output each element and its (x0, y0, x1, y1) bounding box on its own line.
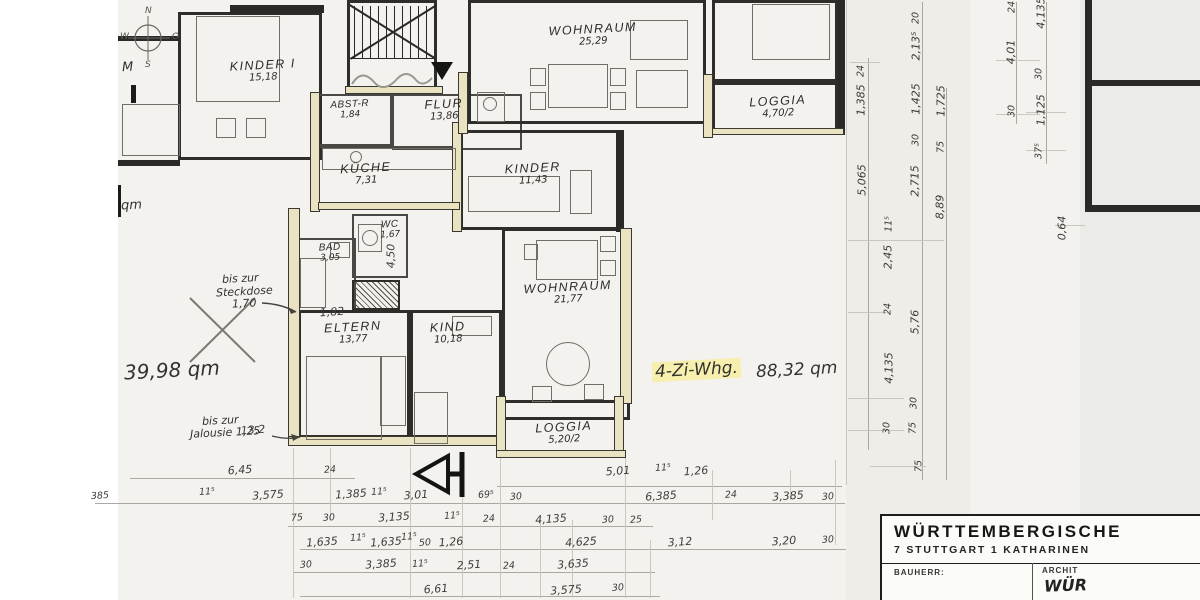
dimension-label: 1,26 (438, 535, 463, 550)
guide-line (1026, 150, 1066, 151)
dimension-label: 30 (300, 559, 313, 571)
dimension-label: 30 (822, 534, 835, 546)
room-area: 3,05 (319, 252, 342, 263)
dimension-label: 20 (911, 12, 922, 24)
dimension-label: 30 (612, 582, 625, 594)
dimension-label: 25 (630, 514, 643, 526)
furniture (600, 260, 616, 276)
furniture (306, 356, 382, 440)
stair-tread (370, 6, 371, 58)
room-name: LOGGIA (749, 93, 807, 110)
room-label-loggia-top: LOGGIA 4,70/2 (749, 93, 807, 121)
dimension-label: 75 (291, 512, 304, 524)
dimension-label: 1,635 (370, 534, 402, 549)
dimension-label: 2,715 (909, 165, 922, 197)
compass-w: W (120, 32, 129, 42)
dimension-label: 30 (882, 422, 893, 434)
furniture (630, 20, 688, 60)
guide-line (848, 240, 944, 241)
dimension-label: 69⁵ (478, 489, 495, 501)
dimension-label: 3,135 (378, 509, 410, 524)
room-area: 13,86 (425, 110, 464, 123)
annotation-apartment-area: 88,32 qm (756, 358, 838, 382)
dimension-label: 6,385 (645, 488, 677, 503)
scan-margin-left (0, 0, 118, 600)
tinted-wall (496, 396, 506, 458)
dimension-label: 24 (883, 303, 894, 315)
dimension-label: 1,125 (1035, 94, 1048, 126)
dimension-label: 3,385 (365, 556, 397, 571)
guide-line (330, 448, 331, 520)
tinted-wall (452, 122, 462, 232)
stair-landing-line (350, 58, 434, 59)
title-block-address: 7 STUTTGART 1 KATHARINEN (894, 544, 1200, 556)
dimension-label: 3,575 (550, 582, 582, 597)
furniture (524, 244, 538, 260)
title-block-architekt-label: ARCHIT (1042, 566, 1078, 575)
dimension-label: 2,51 (456, 558, 481, 573)
furniture (636, 70, 688, 108)
dimension-label: 75 (914, 460, 925, 472)
wall-segment (1085, 205, 1200, 212)
chain-line (300, 596, 660, 597)
room-label-kueche: KÜCHE 7,31 (340, 160, 393, 188)
title-block-cell-divider (1032, 563, 1033, 600)
stair-tread (378, 6, 379, 58)
furniture (548, 64, 608, 108)
tinted-wall (310, 92, 320, 212)
dimension-label: 4,135 (883, 352, 896, 384)
furniture-round (483, 97, 497, 111)
highlight: 4-Zi-Whg. (652, 358, 742, 383)
dimension-label: 75 (936, 141, 947, 153)
dimension-label: 4,135 (535, 511, 567, 526)
dimension-label: 1,82 (319, 305, 344, 320)
room-label-wohnraum-top: WOHNRAUM 25,29 (548, 20, 638, 50)
guide-line (850, 62, 880, 63)
annotation-jalousie-2: Jalousie 1,25 (190, 424, 261, 441)
compass-o: O (172, 32, 179, 42)
annotation-steckdose-3: 1,70 (232, 296, 257, 310)
furniture (300, 258, 326, 308)
room-name: KÜCHE (340, 160, 392, 177)
dimension-label: 11⁵ (412, 558, 429, 570)
room-label-kinder2: KINDER 11,43 (504, 160, 561, 188)
dimension-label: 4,50 (385, 244, 398, 269)
dimension-label: 4,625 (565, 534, 597, 549)
guide-line (712, 470, 713, 520)
floor-plan-scan: 6,45245,0111⁵1,2638511⁵3,5751,38511⁵3,01… (0, 0, 1200, 600)
dimension-label: 24 (1007, 1, 1018, 13)
dimension-label: 11⁵ (401, 531, 418, 543)
furniture (610, 92, 626, 110)
dimension-label: 30 (909, 397, 920, 409)
dimension-label: 3,635 (557, 556, 589, 571)
room-label-kind: KIND 10,18 (429, 319, 466, 346)
scan-shade-right (1080, 0, 1200, 600)
dimension-label: 50 (419, 537, 432, 549)
room-name: KINDER (504, 160, 561, 177)
guide-line (410, 448, 411, 598)
room-label-wohnraum-mid: WOHNRAUM 21,77 (523, 278, 613, 308)
annotation-apartment-type: 4-Zi-Whg. (652, 358, 742, 383)
wall-segment (1090, 80, 1200, 86)
chain-line (288, 526, 653, 527)
dimension-label: 11⁵ (371, 486, 388, 498)
dimension-label: 5,76 (909, 310, 922, 335)
room-area: 1,67 (380, 229, 401, 240)
title-block-divider (882, 563, 1200, 564)
dimension-label: 30 (822, 491, 835, 503)
guide-line (848, 430, 904, 431)
furniture (216, 118, 236, 138)
stair-tread (402, 6, 403, 58)
guide-line (625, 458, 626, 598)
room-label-flur: FLUR 13,86 (424, 96, 464, 123)
dimension-label: 24 (725, 489, 738, 501)
dimension-label: 3,385 (772, 488, 804, 503)
furniture (122, 104, 180, 156)
dimension-label: 1,385 (855, 84, 868, 116)
furniture (246, 118, 266, 138)
furniture (600, 236, 616, 252)
furniture-round (362, 230, 378, 246)
dimension-label: 1,385 (335, 486, 367, 501)
furniture (536, 240, 598, 280)
dimension-label: 3,575 (252, 487, 284, 502)
dimension-label: 24 (483, 513, 496, 525)
furniture (584, 384, 604, 400)
dimension-label: 1,26 (683, 464, 708, 479)
room-label-abstr: ABST-R 1,84 (330, 98, 370, 121)
compass-s: S (145, 60, 151, 70)
room-label-kinder1: KINDER I 15,18 (229, 56, 296, 84)
guide-line (996, 114, 1040, 115)
furniture (610, 68, 626, 86)
dimension-label: 30 (1007, 105, 1018, 117)
shaft-hatched (352, 280, 400, 310)
tinted-wall (712, 128, 844, 135)
wall-segment (616, 130, 624, 232)
room-area: 1,84 (331, 109, 370, 121)
room-label-loggia-bottom: LOGGIA 5,20/2 (535, 419, 593, 447)
guide-line (540, 520, 541, 598)
furniture (380, 356, 406, 426)
room-label-eltern: ELTERN 13,77 (324, 319, 383, 347)
dimension-label: 30 (323, 512, 336, 524)
dimension-label: 6,45 (227, 463, 252, 478)
chain-line-vertical (922, 2, 923, 480)
title-block-bauherr-label: BAUHERR: (894, 568, 945, 577)
guide-line (650, 540, 651, 598)
annotation-area-left: 39,98 qm (123, 356, 220, 385)
chain-line (95, 503, 845, 504)
stair-tread (426, 6, 427, 58)
dimension-label: 2,13⁵ (910, 32, 923, 61)
tinted-wall (318, 202, 460, 210)
guide-line (500, 458, 501, 598)
dimension-label: 1,425 (910, 83, 923, 115)
dimension-label: 5,065 (856, 164, 869, 196)
tinted-wall (496, 450, 626, 458)
room-label-bad: BAD 3,05 (318, 241, 341, 263)
furniture (414, 392, 448, 444)
chain-line (293, 572, 655, 573)
dimension-label: 11⁵ (655, 462, 672, 474)
dimension-label: 30 (1034, 68, 1045, 80)
furniture-round (546, 342, 590, 386)
dimension-label: 24 (856, 65, 867, 77)
tinted-wall (345, 86, 443, 94)
dimension-label: 1,725 (935, 85, 948, 117)
stair-tread (410, 6, 411, 58)
wall-segment (118, 160, 180, 166)
annotation-qm-cut: qm (121, 197, 143, 213)
title-block-architekt-value: WÜR (1044, 575, 1088, 595)
room-name: ELTERN (324, 319, 382, 336)
furniture (530, 92, 546, 110)
dimension-label: 75 (908, 422, 919, 434)
dimension-label: 4,01 (1005, 40, 1018, 65)
guide-line (996, 60, 1040, 61)
furniture (530, 68, 546, 86)
dimension-label: 30 (911, 134, 922, 146)
guide-line (835, 460, 836, 545)
dimension-label: 30 (510, 491, 523, 503)
chain-line-vertical (868, 58, 869, 450)
furniture (532, 386, 552, 402)
stair-tread (386, 6, 387, 58)
dimension-label: 3,12 (667, 535, 692, 550)
room-label-wc: WC 1,67 (379, 218, 400, 240)
compass-n: N (145, 6, 152, 16)
wall-segment (1085, 0, 1092, 212)
dimension-label: 4,135 (1035, 0, 1048, 29)
tinted-wall (620, 228, 632, 404)
dimension-label: 11⁵ (884, 216, 895, 232)
title-block-company: WÜRTTEMBERGISCHE (894, 522, 1200, 542)
stair-tread (354, 6, 355, 58)
guide-line (846, 0, 847, 485)
room-name: LOGGIA (535, 419, 593, 436)
annotation-m-cut: M (122, 60, 134, 76)
dimension-label: 3,01 (403, 488, 428, 503)
furniture (570, 170, 592, 214)
dimension-label: 3,20 (771, 534, 796, 549)
dimension-label: 8,89 (934, 195, 947, 220)
dimension-label: 2,45 (882, 245, 895, 270)
dimension-label: 6,61 (423, 582, 448, 597)
title-block: WÜRTTEMBERGISCHE 7 STUTTGART 1 KATHARINE… (880, 514, 1200, 600)
dimension-label: 37⁵ (1034, 143, 1045, 159)
chain-line (130, 478, 355, 479)
dimension-label: 5,01 (605, 464, 630, 479)
tinted-wall (288, 208, 300, 444)
dimension-label: 11⁵ (199, 486, 216, 498)
dimension-label: 385 (91, 490, 110, 502)
guide-line (848, 398, 904, 399)
furniture (752, 4, 830, 60)
wall-segment (838, 0, 845, 135)
wall-segment (230, 5, 324, 13)
dimension-label: 24 (503, 560, 516, 572)
tinted-wall (614, 396, 624, 458)
dimension-label: 11⁵ (350, 532, 367, 544)
dimension-label: 24 (324, 464, 337, 476)
room-area: 10,18 (430, 333, 466, 346)
chain-line (300, 549, 846, 550)
dimension-label: 30 (602, 514, 615, 526)
dimension-label: 11⁵ (444, 510, 461, 522)
dimension-label: 0,64 (1056, 216, 1069, 241)
dimension-label: 1,635 (306, 534, 338, 549)
